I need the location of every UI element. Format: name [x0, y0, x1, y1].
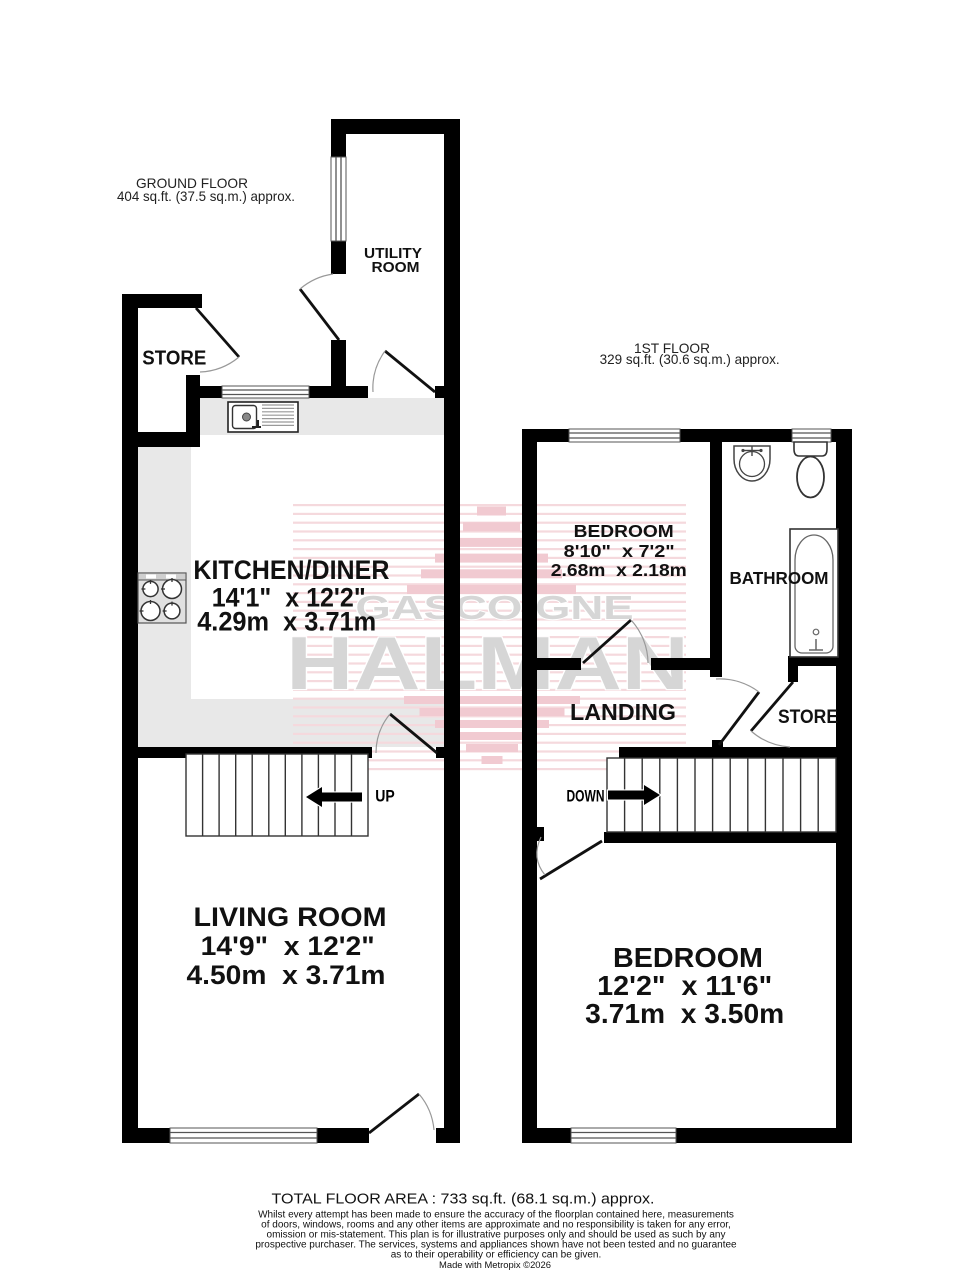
svg-text:Made with Metropix ©2026: Made with Metropix ©2026 [439, 1260, 551, 1270]
svg-text:3.71m x 3.50m: 3.71m x 3.50m [585, 998, 784, 1029]
svg-text:UP: UP [375, 788, 395, 806]
svg-text:BEDROOM: BEDROOM [613, 942, 763, 973]
svg-text:8'10" x 7'2": 8'10" x 7'2" [564, 541, 675, 561]
svg-text:14'9" x 12'2": 14'9" x 12'2" [201, 931, 375, 961]
svg-text:404 sq.ft. (37.5 sq.m.) approx: 404 sq.ft. (37.5 sq.m.) approx. [117, 188, 295, 204]
svg-text:STORE: STORE [142, 348, 206, 370]
svg-text:2.68m x 2.18m: 2.68m x 2.18m [551, 560, 687, 580]
svg-text:LANDING: LANDING [570, 699, 676, 725]
svg-text:4.29m x 3.71m: 4.29m x 3.71m [197, 607, 376, 637]
svg-text:BEDROOM: BEDROOM [574, 521, 674, 541]
svg-text:KITCHEN/DINER: KITCHEN/DINER [193, 555, 389, 585]
svg-text:12'2" x 11'6": 12'2" x 11'6" [597, 970, 772, 1001]
svg-text:BATHROOM: BATHROOM [730, 568, 829, 588]
svg-text:4.50m x 3.71m: 4.50m x 3.71m [187, 960, 386, 990]
svg-text:329 sq.ft. (30.6 sq.m.) approx: 329 sq.ft. (30.6 sq.m.) approx. [600, 351, 780, 367]
svg-text:STORE: STORE [778, 707, 838, 728]
svg-text:DOWN: DOWN [567, 788, 605, 806]
svg-text:ROOM: ROOM [372, 260, 420, 276]
svg-text:LIVING ROOM: LIVING ROOM [194, 902, 387, 932]
svg-text:TOTAL FLOOR AREA : 733 sq.ft.: TOTAL FLOOR AREA : 733 sq.ft. (68.1 sq.m… [272, 1191, 655, 1208]
